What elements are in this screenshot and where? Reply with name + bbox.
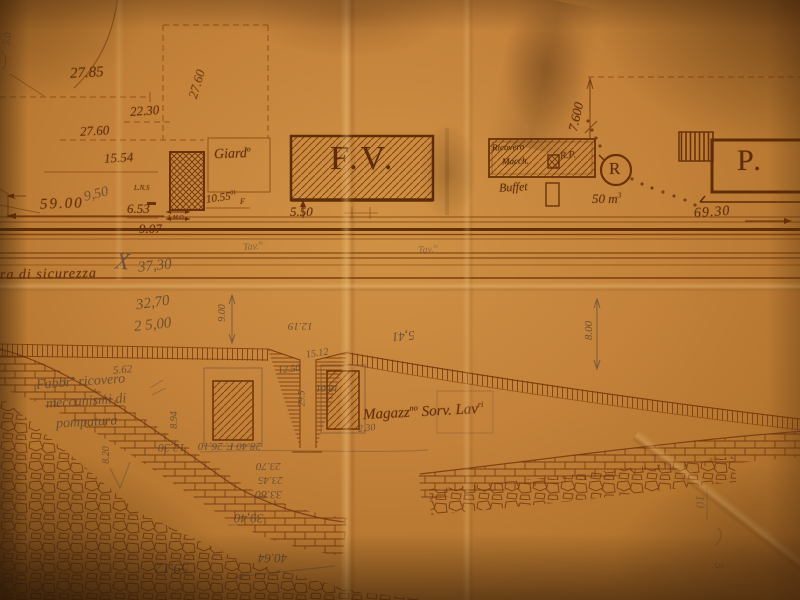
label-giardino-sup: o — [247, 144, 251, 153]
tav2-base: Tav. — [418, 244, 435, 256]
plan-linework — [0, 0, 800, 600]
label-buffet: Buffet — [499, 180, 528, 193]
label-ricovero-line1: Ricovero — [492, 142, 524, 152]
pencil-5-41: 5,41 — [391, 329, 415, 344]
label-rp: R.P. — [560, 150, 577, 161]
pencil-tav-2: Tav.ta — [418, 244, 439, 256]
dim-6-53: 6.53 — [127, 202, 150, 215]
pencil-5-0-topleft: 5.0 — [2, 32, 14, 46]
mark-f: F — [240, 198, 245, 206]
buffet-kiosk — [546, 183, 559, 206]
dim-59-00: 59.00 — [40, 196, 84, 213]
pencil-33-80: 33.80 — [255, 489, 282, 501]
rp-square — [548, 155, 559, 168]
top-left-ink-marks — [2, 0, 118, 96]
dim-27-60: 27.60 — [80, 123, 110, 138]
dashed-boundary-lines — [0, 25, 800, 140]
label-p-building: P. — [737, 146, 764, 176]
dim-5-50: 5.50 — [290, 205, 313, 218]
pencil-23-45: 23.45 — [258, 474, 283, 485]
tav1-base: Tav. — [243, 241, 260, 253]
pencil-23-70: 23.70 — [256, 460, 281, 471]
pencil-9-00-vert: 9.00 — [218, 304, 228, 322]
striped-platform-box — [679, 132, 713, 161]
pencil-5-vert: 5 — [713, 563, 725, 569]
dim-27-85: 27.85 — [70, 65, 104, 82]
label-reservoir-volume: 50 m3 — [592, 192, 621, 205]
dim-10-55-sup: 01 — [230, 190, 237, 197]
label-ricovero-line2: Macch. — [502, 157, 529, 167]
tav1-sup: ta — [258, 240, 263, 246]
pencil-x-mark: X — [114, 249, 131, 274]
dim-69-30: 69.30 — [694, 205, 731, 222]
mark-lmo: L.M.O — [168, 215, 184, 221]
label-giardino-base: Giard — [214, 146, 247, 162]
scanned-station-plan: 27.85 27.60 22.30 27.60 15.54 59.00 6.53… — [0, 0, 800, 600]
pencil-8-94-vert: 8.94 — [170, 411, 180, 429]
pump-house-hatched — [204, 368, 262, 446]
pencil-18-01: 18.01 — [316, 382, 339, 392]
tav2-sup: ta — [433, 243, 438, 249]
pencil-29-5-vert: 29.5 — [297, 391, 306, 407]
pencil-12-19: 12.19 — [288, 320, 313, 331]
pencil-39-40: 39,40 — [234, 512, 263, 525]
fabbr-l1a: Fabbr — [36, 375, 72, 392]
pencil-28-40-f-26-10: 28.40 F. 26.10 — [198, 440, 261, 451]
label-fv-building: F.V. — [330, 142, 395, 176]
label-giardino: Giardo — [214, 145, 251, 162]
pencil-12-30: 12.30 — [158, 442, 185, 454]
label-reservoir-r: R — [609, 160, 623, 177]
pencil-tav-1: Tav.ta — [243, 241, 264, 253]
pencil-8-20-vert: 8.20 — [102, 446, 112, 464]
label-sicurezza: ra di sicurezza — [0, 267, 97, 283]
pencil-2-30: 2.30 — [358, 423, 376, 434]
mark-lns: L.N.S — [134, 185, 150, 192]
pencil-59-12: 59.12 — [155, 560, 189, 575]
magazzino-b2: Sorv. Lav — [418, 401, 479, 420]
pencil-8-00-vert: 8.00 — [584, 321, 595, 340]
reservoir-volume-base: 50 m — [592, 191, 618, 206]
pencil-10-vert: 10 — [694, 495, 707, 508]
magazzino-b1: Magazz — [363, 405, 410, 423]
dim-9-07: 9.07 — [139, 222, 162, 235]
reservoir-volume-sup: 3 — [618, 192, 622, 200]
pencil-40-64: 40.64 — [258, 552, 287, 565]
dim-22-30: 22.30 — [130, 103, 160, 118]
dim-15-54: 15.54 — [104, 150, 134, 165]
magazzino-s2: ri — [478, 400, 484, 409]
